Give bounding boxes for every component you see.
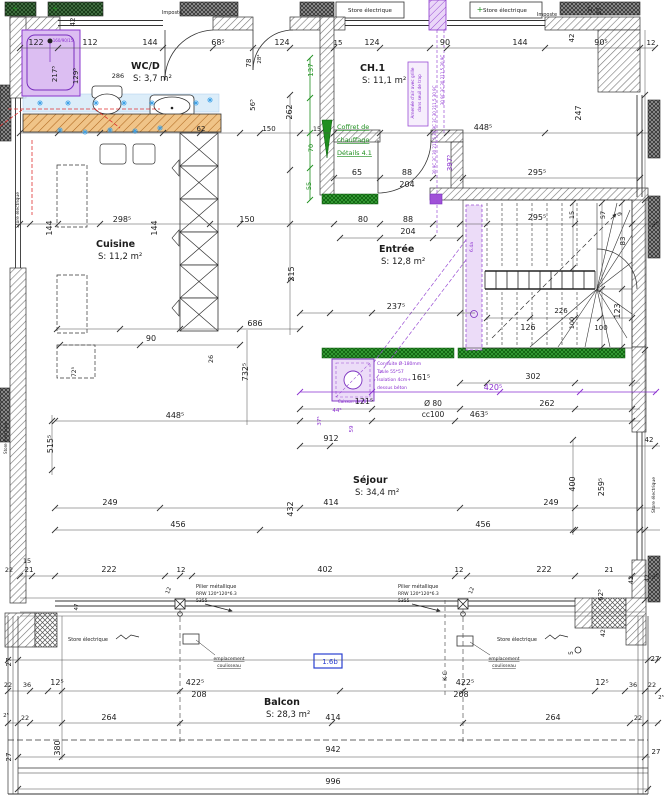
dimension-label: 28⁴ [256,54,263,64]
dimension-label: 30 9C 3C 30 211,5 30 9C 3C 30 211,5 30 9… [432,85,437,174]
cabinet [57,165,87,227]
dimension-label: 72⁵ [71,366,78,377]
duct-column [429,0,446,30]
wall-interior [320,17,334,195]
appliance [133,144,155,164]
dimension-label: 144 [150,220,159,235]
dimension-label: 126 [520,323,535,332]
dimension-label: Store électrique [14,192,21,228]
dimension-label: 80 [358,215,368,224]
dimension-label: 42 [627,576,635,584]
dimension-label: 247 [574,105,583,120]
dimension-label: 150 [262,125,275,133]
dimension-label: 42 [568,34,576,43]
store-box-small [457,636,473,646]
dimension-label: Store électrique [3,421,8,453]
dimension-label: 414 [325,713,340,722]
dimension-label: 5355 [398,598,410,604]
dimension-label: 912 [323,434,338,443]
dimension-label: 12 [177,566,186,574]
store-label-boxes [183,2,542,668]
dimension-label: 259⁵ [597,478,606,496]
dimension-label: 21 [605,566,614,574]
dimension-label: 59 [349,425,355,432]
dimension-label: Imposte [162,10,182,16]
dimension-label: 15 [313,125,321,133]
dimension-label: 56⁵ [249,99,257,111]
dimension-label: 432 [286,501,295,516]
dimension-label: 226 [554,307,568,315]
dimension-label: coulisseau [217,663,241,669]
dimension-label: 22 [21,714,29,722]
dimension-label: + [12,4,19,13]
dimension-label: 27 [5,753,13,762]
dimension-label: 100 [594,324,607,332]
wall-column [35,613,57,647]
blind-box [648,196,660,258]
dimension-label: 78 [245,59,253,68]
dimension-label: 90 [146,334,156,343]
dimension-label: chauffage [337,136,369,144]
dimension-label: 122 [28,38,43,47]
dimension-label: 42 [69,18,77,27]
dimension-label: Pilier métallique [196,583,236,590]
dimension-label: 65 [352,168,362,177]
dimension-label: Store électrique [68,636,108,643]
dimension-label: 400 [568,476,577,491]
vanity-counter [23,114,221,132]
dimension-label: 262 [285,104,294,119]
dimension-label: 123 [613,303,622,318]
duct-outlet [430,194,442,204]
dimension-label: 27 [596,7,603,15]
dimension-label: K-C [442,671,449,681]
dimension-label: Pilier métallique [398,583,438,590]
corner-point [575,647,581,653]
dimension-label: + [52,4,59,13]
cabinet [57,275,87,333]
store-arrow [116,635,139,639]
dimension-label: 222 [536,565,551,574]
wall [545,17,640,30]
dimension-label: 732⁵ [241,363,250,381]
room-name-wcd: WC/D [131,61,160,72]
dimension-label: 36 [629,681,637,689]
dimension-label: 456 [475,520,490,529]
dimension-label: 22 [5,566,13,574]
dimension-label: 42 [600,629,607,637]
heating-strip [322,348,454,358]
dimension-label: 5 [568,651,575,655]
dimension-label: 62⁵ [597,589,605,601]
dimension-label: 264 [545,713,560,722]
dimension-label: 26 [207,355,215,363]
floor-plan-drawing: WC/D S: 3,7 m² CH.1 S: 11,1 m² Cuisine S… [0,0,664,800]
dimension-label: 62 [197,125,206,133]
structure-details [116,599,581,742]
dimension-label: 9 [616,212,624,216]
dimension-label: 422⁵ [456,678,474,687]
dimension-label: 12⁵ [50,678,63,687]
floor-plan-page: WC/D S: 3,7 m² CH.1 S: 11,1 m² Cuisine S… [0,0,664,800]
room-name-balcon: Balcon [264,697,300,708]
dimension-label: 129⁵ [72,68,80,84]
dimension-label: 22 [4,681,12,689]
blind-box [5,2,36,16]
dimension-label: Taule 55*57 [376,369,404,375]
dimension-label: 217⁵ [51,66,59,82]
wall [575,598,593,628]
room-area-entree: S: 12,8 m² [381,257,425,267]
room-name-sejour: Séjour [353,475,388,486]
wall-stair-top [430,188,648,200]
dimension-label: 204 [400,227,415,236]
dimension-label: 90 [440,38,450,47]
stair-arc [597,249,637,289]
dimension-label: 448⁵ [166,411,184,420]
dimension-label: 12 [647,39,656,47]
dimension-label: 397⁵ [446,155,454,171]
dimension-label: Store électrique [650,477,657,513]
dimension-label: 22 [648,681,656,689]
dimension-label: 456 [170,520,185,529]
dimension-label: RRW 120*120*6.3 [196,591,237,597]
dimension-label: 380 [53,740,62,755]
dimension-label: emplacement [488,656,519,662]
door-arc [165,30,213,80]
dimension-label: 686 [247,319,262,328]
dimension-label: Conduite Ø-180mm [377,360,421,367]
dimension-label: 15 [568,211,576,219]
dimension-label: Caisson de 46 [338,399,367,404]
dimension-label: 208 [191,690,206,699]
blind-box [0,85,11,141]
dimension-label: 124 [274,38,289,47]
dimension-label: 160/90/15 [53,38,74,43]
wall [5,613,35,647]
dimension-label: 68⁵ [211,38,224,47]
dimension-label: Store électrique [483,7,528,14]
dimension-label: 27 [5,658,13,667]
dimension-label: 420⁵ [484,383,502,392]
dimension-label: 12⁵ [595,678,608,687]
dimension-label: 515⁵ [46,435,55,453]
dimension-label: 55 [305,182,313,190]
tall-cabinet-column [172,133,218,331]
dimension-label: 1.6b [322,658,338,666]
wall [632,197,646,347]
dimension-label: 15 [334,39,343,47]
dimension-label: 208 [453,690,468,699]
dimension-label: 2⁵ [3,712,9,719]
heating-strip [322,194,378,204]
dimension-label: 161⁵ [412,373,430,382]
dimension-label: 36 [23,681,31,689]
dimension-label: 47 [74,603,80,610]
dimension-label: coulisseau [492,663,516,669]
dimension-label: dessus béton [377,384,407,391]
dimension-label: 249 [102,498,117,507]
dimension-label: cc100 [422,410,445,419]
blind-box [648,100,660,158]
wall [290,17,345,30]
dimension-label: Store électrique [348,7,393,14]
store-box-small [183,634,199,644]
dimension-label: 42 [644,574,651,582]
dimension-label: 144 [142,38,157,47]
dimension-label: Ø 80 [424,399,442,408]
dimension-label: 942 [325,745,340,754]
dimension-label: 302 [525,372,540,381]
dimension-label: 150 [239,215,254,224]
dimension-label: 5355 [196,598,208,604]
wall-column [592,598,626,628]
dimension-label: 12 [455,566,464,574]
dimension-label: 144 [45,220,54,235]
stair-handrail [485,271,595,289]
dimension-label: 422⁵ [186,678,204,687]
dimension-label: RRW 120*120*6.3 [398,591,439,597]
washbasin [154,97,190,115]
dimension-label: Détails 4.1 [337,149,372,157]
dimension-label: Store électrique [497,636,537,643]
blind-box [180,2,238,16]
dimension-label: dans seuil de trap [417,74,422,112]
dimension-label: 414 [323,498,338,507]
dimension-label: 88 [402,168,412,177]
wall [10,268,26,603]
dimension-label: 42 [645,436,654,444]
dimension-label: Coffret de [337,123,369,131]
room-area-sejour: S: 34,4 m² [355,488,399,498]
room-area-wcd: S: 3,7 m² [133,74,172,84]
dimension-label: 137 [307,63,315,76]
dimension-label: 237⁵ [387,302,405,311]
dimension-label: 70 [307,144,315,152]
room-area-balcon: S: 28,3 m² [266,710,310,720]
washbasin-drain [171,107,174,110]
wall [213,17,253,30]
dimension-label: 2⁵ [587,6,594,12]
room-name-cuisine: Cuisine [96,239,135,250]
dimension-label: 21 [25,566,34,574]
dimension-label: 262 [539,399,554,408]
dimension-label: 90⁵ [594,38,607,47]
dimension-label: 215 [287,266,296,281]
dimension-label: 249 [543,498,558,507]
dimension-label: 88 [403,215,413,224]
dimension-label: 27 [651,655,660,663]
dimension-label: 27 [652,748,661,756]
dimension-label: 295⁵ [528,168,546,177]
dimension-label: Imposte [537,12,557,18]
stair-winder-steps [530,203,632,347]
dimension-label: 2⁵ [658,694,664,701]
dimension-label: 298⁵ [113,215,131,224]
dimension-label: 996 [325,777,340,786]
duct-band [466,205,482,350]
dimension-label: Amenée d'air avec grille [410,67,415,118]
dimension-label: 100 [568,317,576,329]
blind-box [300,2,334,16]
dimension-label: emplacement [213,656,244,662]
dimension-label: 204 [399,180,414,189]
dimension-label: 6.4a [469,242,475,252]
room-area-cuisine: S: 11,2 m² [98,252,142,262]
dimension-label: 44⁵ [332,407,341,414]
dimension-label: 144 [512,38,527,47]
dimension-label: Isolation 4cm+ [377,377,411,383]
room-name-ch1: CH.1 [360,63,385,74]
dimension-label: 12 [165,586,173,595]
dimension-label: 22 [634,714,642,722]
dimension-label: 37⁵ [316,416,323,425]
dimension-label: 12 [468,586,476,595]
dimension-label: 57 [599,211,607,219]
stair-walk-line [492,214,616,338]
store-arrow [545,635,568,639]
dimension-label: 448⁵ [474,123,492,132]
dimension-label: 295⁵ [528,213,546,222]
dimension-label: 463⁵ [470,410,488,419]
appliance [100,144,126,164]
dimension-label: 402 [317,565,332,574]
dimension-label: 222 [101,565,116,574]
dimension-label: 112 [82,38,97,47]
dimension-label: 83 [619,237,627,246]
dimension-label: 15 [23,557,31,565]
room-name-entree: Entrée [379,244,414,255]
room-area-ch1: S: 11,1 m² [362,76,406,86]
dimension-label: 30 9C 3C 30 211,5 30 9C [440,55,445,106]
dimension-label: 124 [364,38,379,47]
dimension-label: 286 [112,72,124,80]
dimension-label: 264 [101,713,116,722]
